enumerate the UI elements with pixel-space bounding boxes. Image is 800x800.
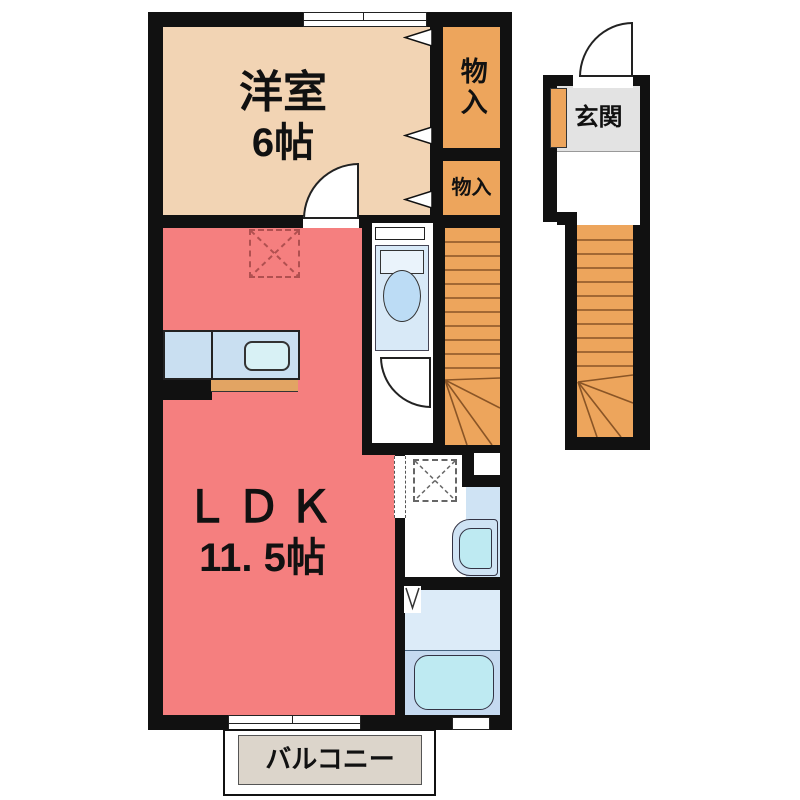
- washbasin-bowl-icon: [459, 528, 492, 569]
- western-room-size: 6帖: [252, 119, 314, 167]
- kitchen-counter-divider: [211, 332, 213, 378]
- storage-upper: 物入: [443, 27, 500, 148]
- balcony-label: バルコニー: [265, 744, 394, 775]
- kitchen-floor-strip: [211, 378, 298, 392]
- floor-plan: 洋室 6帖 物入 物入 ＬＤＫ 11. 5帖: [0, 0, 800, 800]
- bath-folding-door-icon: [404, 586, 421, 613]
- washroom-niche-wall: [462, 475, 500, 487]
- bathroom-window-icon: [452, 717, 490, 730]
- inner-staircase-icon: [445, 228, 500, 445]
- ldk-size: 11. 5帖: [199, 534, 326, 582]
- toilet-transom: [375, 227, 425, 240]
- storage-lower: 物入: [443, 161, 500, 215]
- entrance-hall: 玄関: [557, 86, 640, 152]
- toilet-bowl-icon: [383, 270, 421, 322]
- toilet-room: [375, 245, 429, 351]
- closet-door-marker-icon: [403, 126, 433, 145]
- annex-wall-carve: [543, 222, 565, 450]
- balcony-deck: バルコニー: [238, 735, 422, 785]
- balcony-sliding-door-icon: [228, 715, 361, 730]
- annex-staircase-icon: [577, 225, 633, 437]
- balcony: バルコニー: [223, 729, 436, 796]
- storage-lower-label: 物入: [452, 176, 492, 200]
- refrigerator-space-marker-icon: [249, 229, 300, 278]
- kitchen-counter: [163, 330, 300, 380]
- closet-door-marker-icon: [403, 28, 433, 47]
- entrance-label: 玄関: [575, 104, 623, 133]
- washroom-niche: [474, 453, 500, 475]
- kitchen-sink-icon: [244, 341, 290, 371]
- western-room: 洋室 6帖: [163, 27, 430, 215]
- washer-space-marker-icon: [413, 459, 457, 502]
- shoe-cabinet: [550, 88, 567, 148]
- top-sliding-window-icon: [303, 12, 427, 27]
- annex-step-shoulder: [557, 212, 577, 225]
- closet-door-marker-icon: [403, 190, 433, 209]
- entrance-door-swing-icon: [579, 22, 633, 77]
- ldk-name: ＬＤＫ: [185, 482, 341, 535]
- storage-upper-label: 物入: [455, 57, 487, 119]
- washbasin-icon: [452, 519, 498, 576]
- ldk-label: ＬＤＫ 11. 5帖: [160, 462, 365, 602]
- western-room-name: 洋室: [239, 67, 327, 120]
- bathtub-icon: [414, 655, 494, 710]
- washroom-door: [394, 456, 406, 518]
